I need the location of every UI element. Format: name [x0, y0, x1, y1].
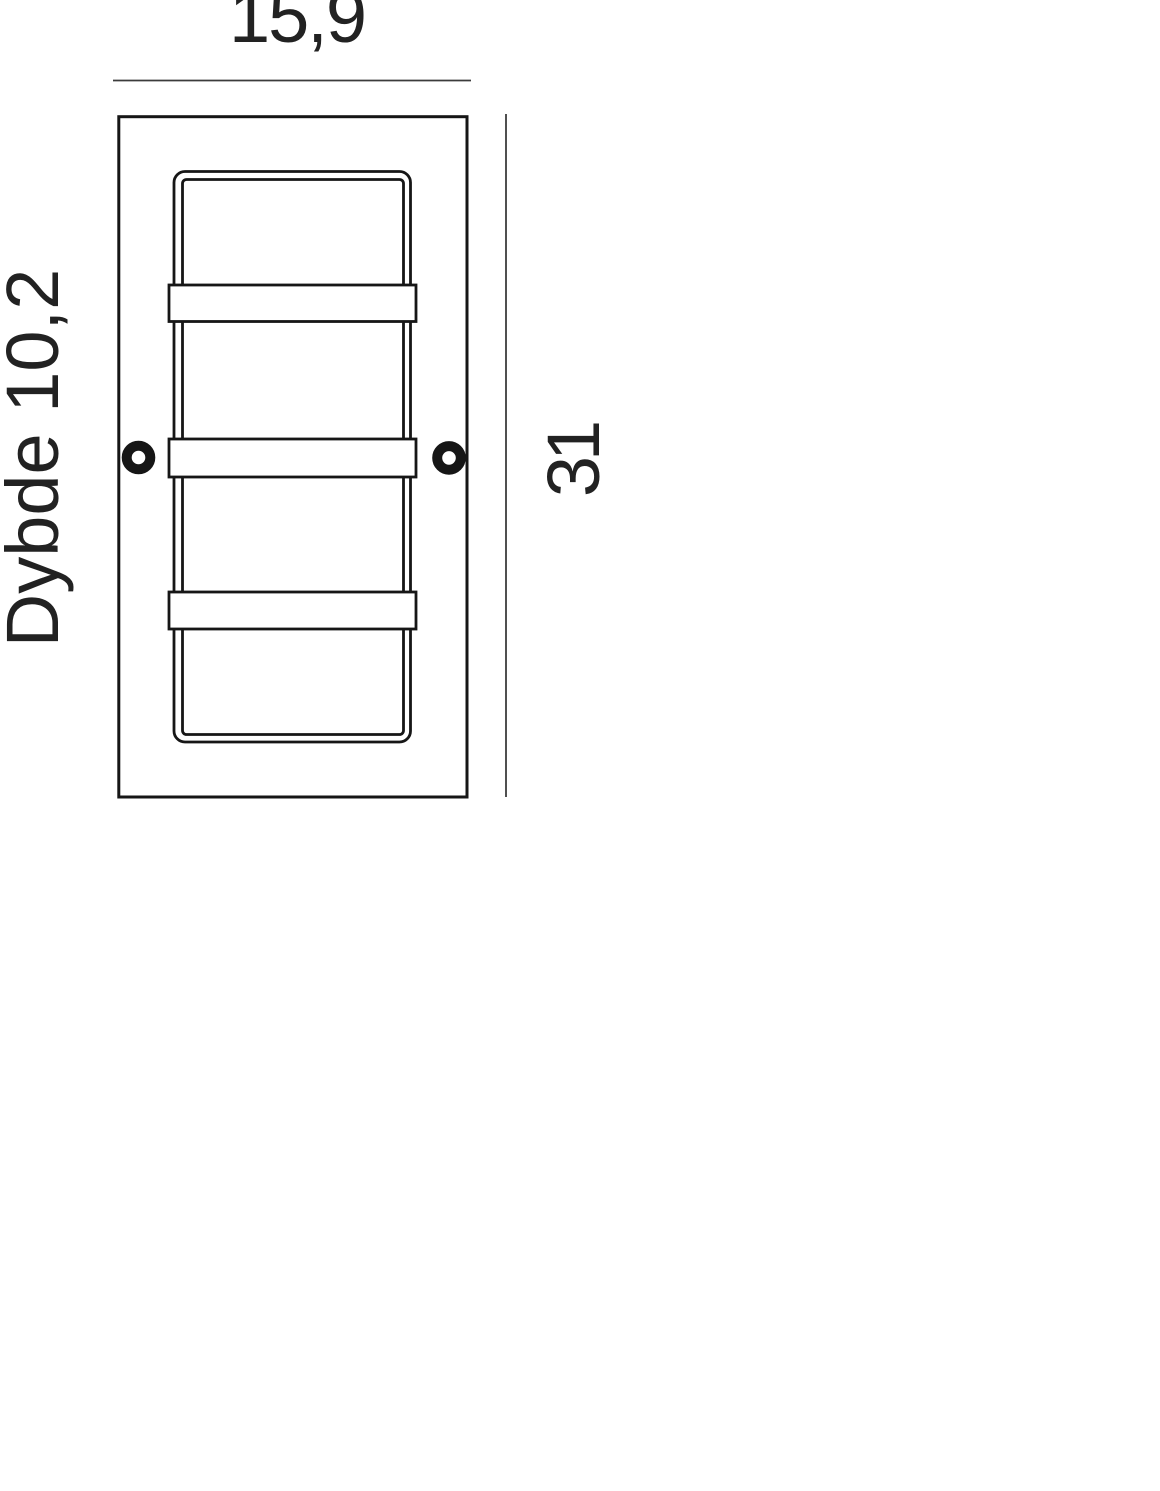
svg-text:15,9: 15,9	[229, 0, 365, 58]
svg-text:31: 31	[532, 423, 615, 497]
svg-text:Dybde 10,2: Dybde 10,2	[0, 269, 74, 648]
